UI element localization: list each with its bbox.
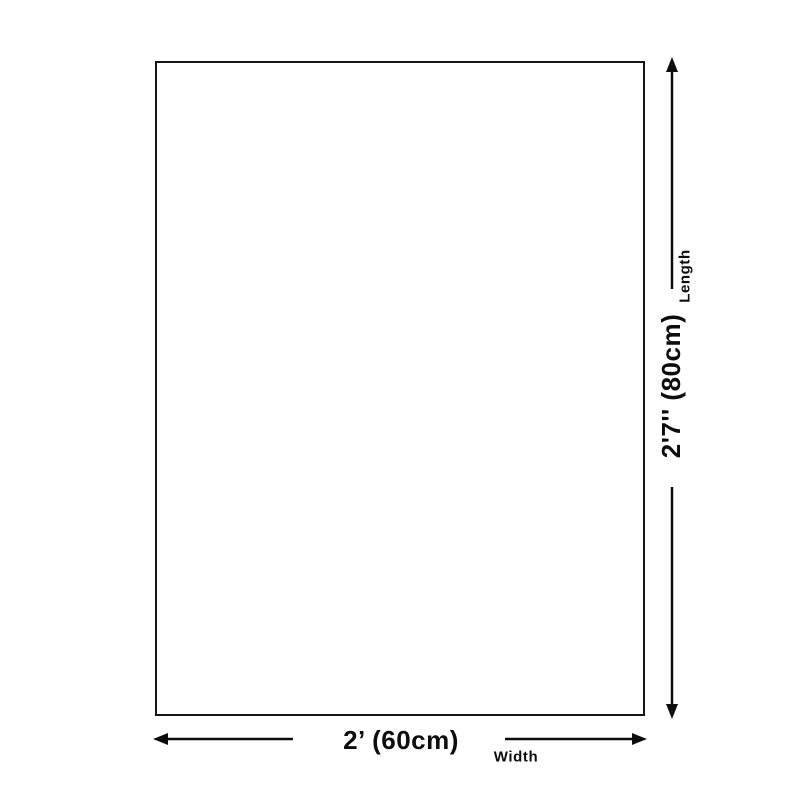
arrowhead-down-icon [666, 704, 678, 719]
width-dimension-label: Width [494, 750, 539, 765]
arrowhead-right-icon [632, 733, 647, 745]
dimension-diagram: 2'7'' (80cm) Length 2’ (60cm) Width [0, 0, 800, 800]
product-outline [155, 61, 645, 716]
width-dimension-value: 2’ (60cm) [343, 727, 459, 753]
arrowhead-left-icon [153, 733, 168, 745]
length-dimension-label: Length [678, 249, 693, 303]
length-dimension-value: 2'7'' (80cm) [658, 314, 684, 459]
arrowhead-up-icon [666, 57, 678, 72]
